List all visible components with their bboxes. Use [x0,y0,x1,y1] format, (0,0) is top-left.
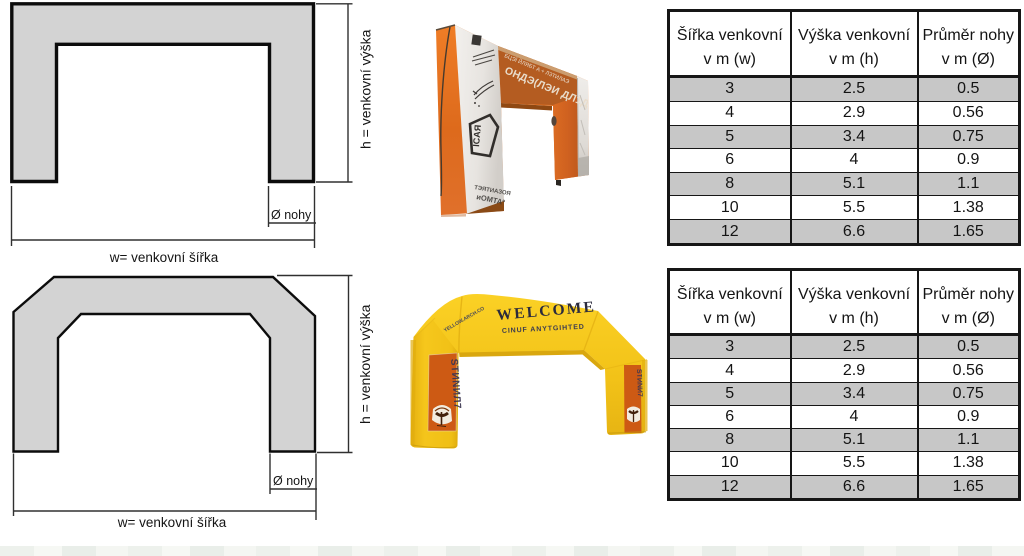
svg-text:h = venkovní výška: h = venkovní výška [358,29,374,149]
svg-text:w= venkovní šířka: w= venkovní šířka [117,515,227,530]
svg-text:h = venkovní výška: h = venkovní výška [357,304,373,424]
svg-text:Ø nohy: Ø nohy [271,208,312,222]
svg-text:Ø nohy: Ø nohy [273,474,314,488]
svg-text:SТИNИ7: SТИNИ7 [635,369,643,397]
svg-text:w= venkovní šířka: w= venkovní šířka [109,250,219,265]
svg-text:IСAЯ: IСAЯ [471,124,483,147]
